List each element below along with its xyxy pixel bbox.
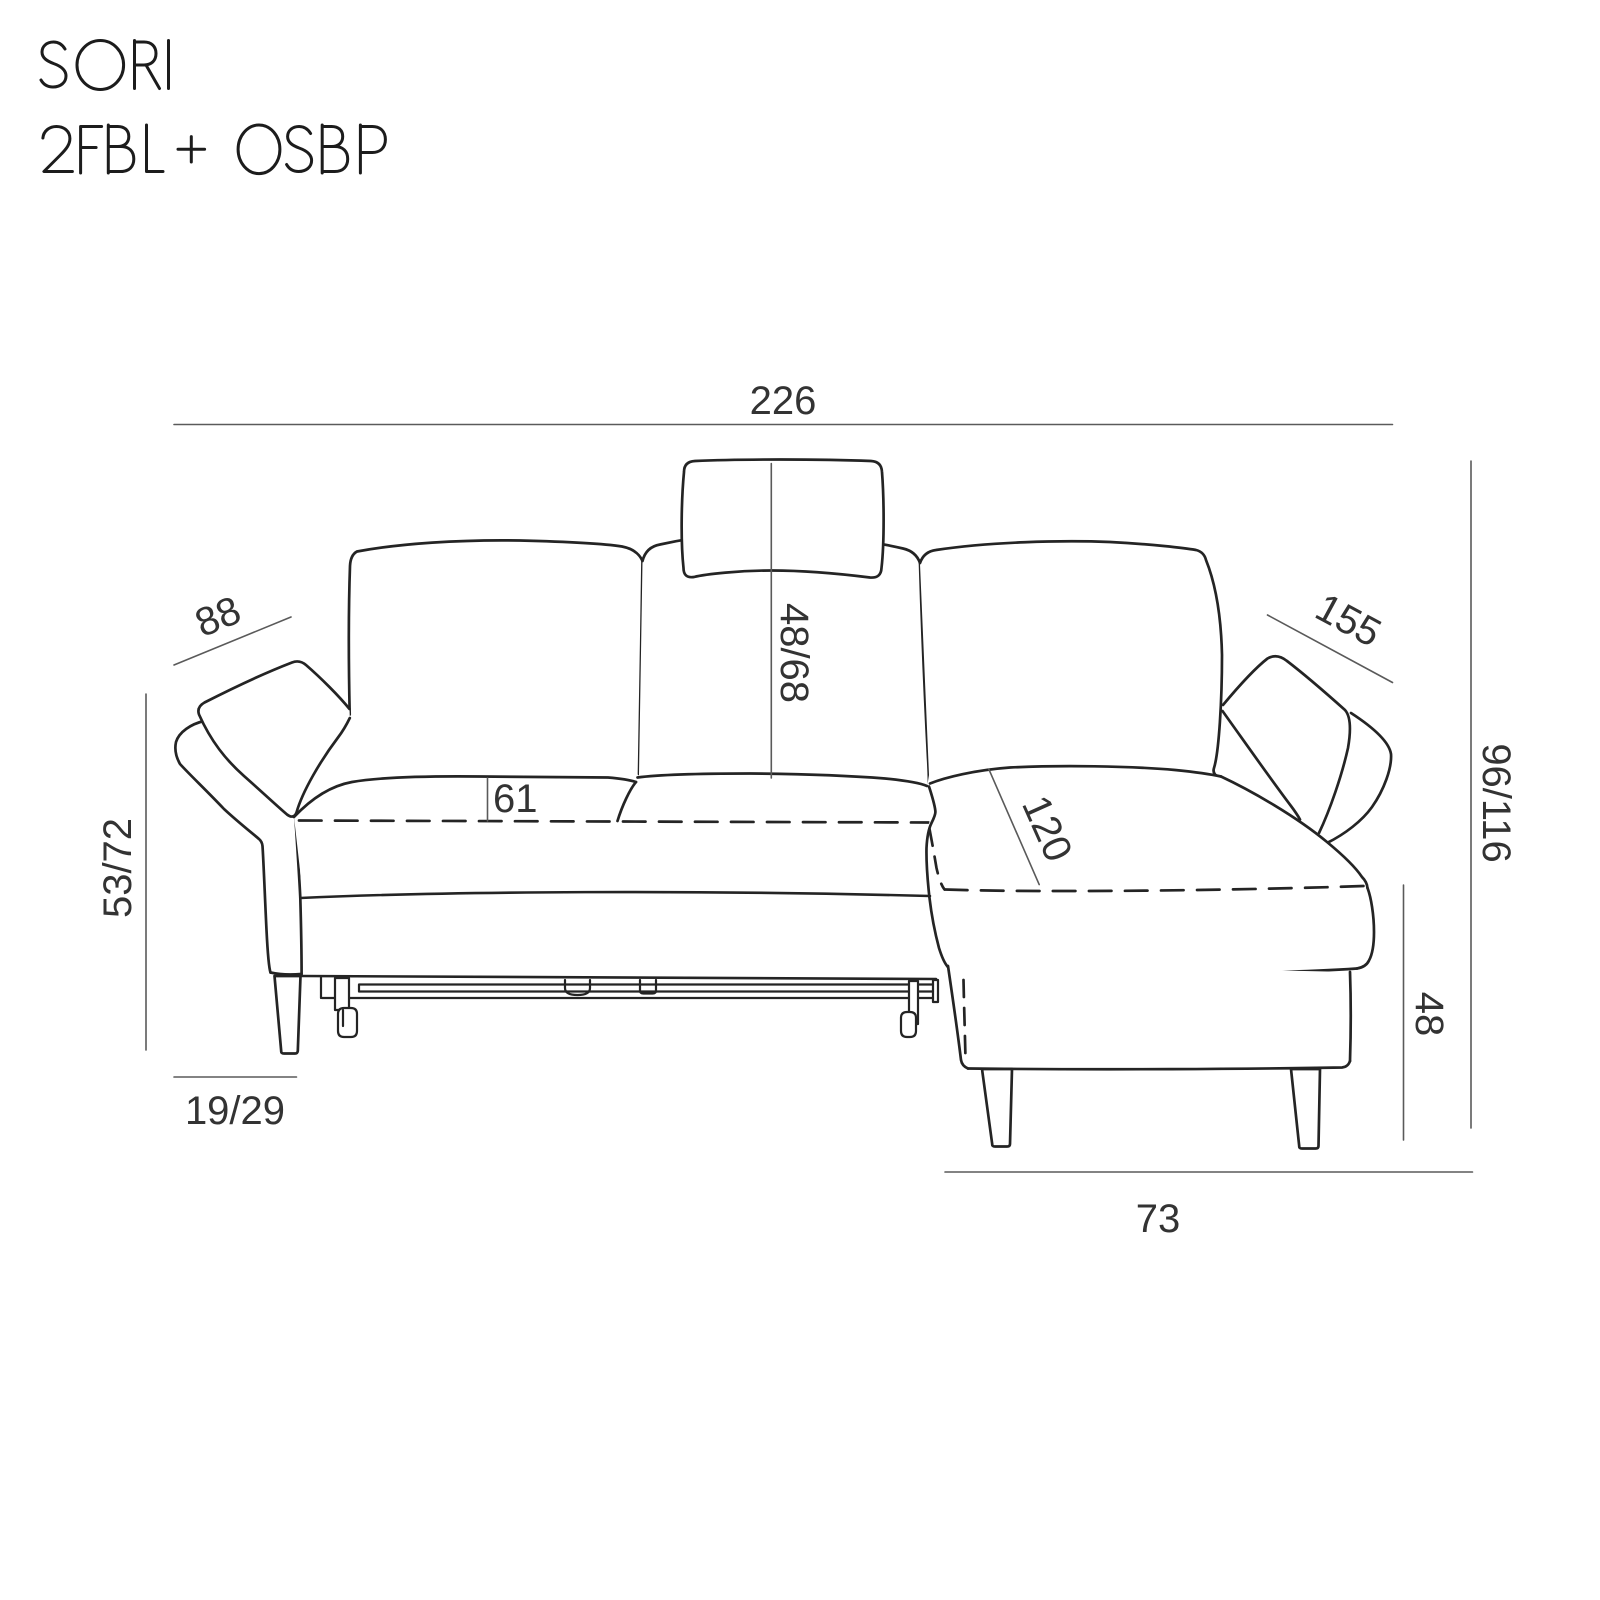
svg-text:61: 61 xyxy=(493,777,538,821)
svg-text:53/72: 53/72 xyxy=(96,818,140,918)
svg-text:73: 73 xyxy=(1136,1197,1181,1241)
svg-text:155: 155 xyxy=(1308,585,1388,655)
svg-text:19/29: 19/29 xyxy=(185,1089,285,1133)
svg-text:88: 88 xyxy=(189,588,247,646)
svg-text:48: 48 xyxy=(1407,992,1451,1037)
svg-text:48/68: 48/68 xyxy=(772,603,816,703)
svg-text:96/116: 96/116 xyxy=(1474,743,1518,862)
svg-text:226: 226 xyxy=(750,379,817,423)
